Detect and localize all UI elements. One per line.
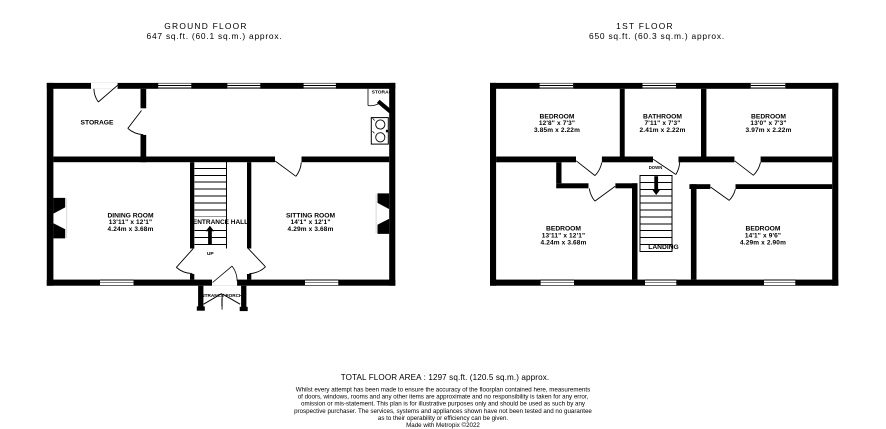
svg-text:2.41m x 2.22m: 2.41m x 2.22m	[639, 127, 685, 134]
svg-text:12'8" x 7'3": 12'8" x 7'3"	[539, 120, 575, 127]
svg-text:UP: UP	[207, 251, 215, 257]
svg-text:4.29m x 3.68m: 4.29m x 3.68m	[287, 226, 333, 233]
svg-text:omission or mis-statement. Thi: omission or mis-statement. This plan is …	[301, 401, 586, 408]
svg-text:7'11" x 7'3": 7'11" x 7'3"	[645, 120, 681, 127]
svg-text:ENTRANCE HALL: ENTRANCE HALL	[193, 219, 248, 226]
svg-text:DOWN: DOWN	[649, 165, 663, 170]
svg-text:1ST FLOOR: 1ST FLOOR	[616, 21, 674, 31]
svg-text:Made with Metropix ©2022: Made with Metropix ©2022	[406, 422, 480, 429]
svg-text:4.29m x 2.90m: 4.29m x 2.90m	[740, 240, 786, 247]
svg-text:prospective purchaser. The ser: prospective purchaser. The services, sys…	[294, 408, 592, 415]
svg-text:TOTAL FLOOR AREA : 1297 sq.ft.: TOTAL FLOOR AREA : 1297 sq.ft. (120.5 sq…	[341, 373, 550, 382]
svg-text:Whilst every attempt has been: Whilst every attempt has been made to en…	[296, 387, 590, 394]
svg-text:4.24m x 3.68m: 4.24m x 3.68m	[107, 226, 153, 233]
svg-text:3.97m x 2.22m: 3.97m x 2.22m	[745, 127, 791, 134]
svg-text:GROUND FLOOR: GROUND FLOOR	[164, 21, 247, 31]
svg-text:650 sq.ft. (60.3 sq.m.) approx: 650 sq.ft. (60.3 sq.m.) approx.	[589, 31, 725, 41]
svg-text:4.24m x 3.68m: 4.24m x 3.68m	[540, 240, 586, 247]
svg-text:13'11" x 12'1": 13'11" x 12'1"	[542, 233, 586, 240]
svg-text:14'1" x 9'6": 14'1" x 9'6"	[745, 233, 781, 240]
svg-text:as to their operability or eff: as to their operability or efficiency ca…	[378, 415, 509, 422]
svg-text:LANDING: LANDING	[648, 244, 678, 251]
svg-text:647 sq.ft. (60.1 sq.m.) approx: 647 sq.ft. (60.1 sq.m.) approx.	[147, 31, 283, 41]
svg-text:13'11" x 12'1": 13'11" x 12'1"	[109, 219, 153, 226]
svg-text:14'1" x 12'1": 14'1" x 12'1"	[290, 219, 330, 226]
svg-text:of doors, windows, rooms and a: of doors, windows, rooms and any other i…	[298, 394, 589, 401]
svg-text:3.85m x 2.22m: 3.85m x 2.22m	[534, 127, 580, 134]
svg-text:STORAGE: STORAGE	[81, 120, 114, 127]
svg-text:13'0" x 7'3": 13'0" x 7'3"	[750, 120, 786, 127]
